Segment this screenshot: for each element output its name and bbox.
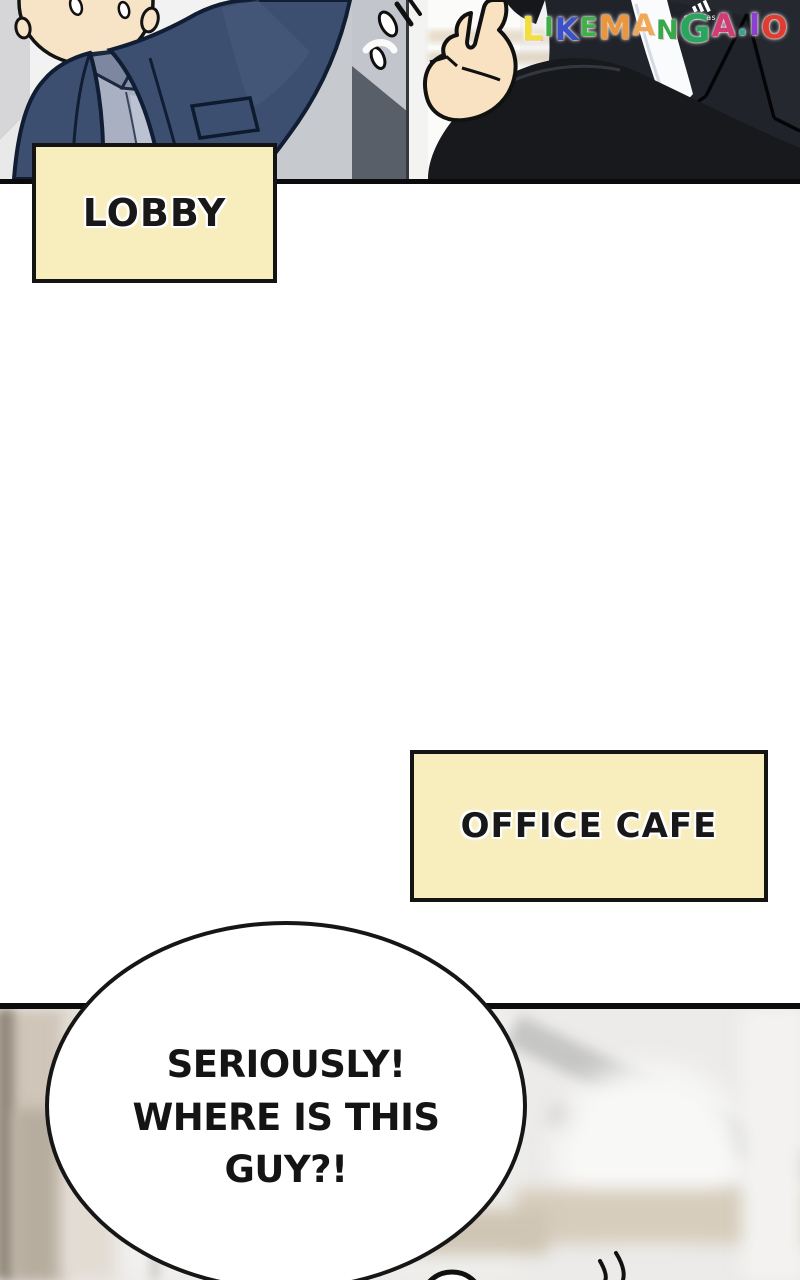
scene-label-lobby: LOBBY	[32, 143, 277, 283]
character-head-top-icon	[424, 1272, 480, 1280]
speech-bubble: SERIOUSLY! WHERE IS THIS GUY?!	[45, 921, 527, 1280]
scene-label-lobby-text: LOBBY	[83, 191, 227, 235]
speech-bubble-text: SERIOUSLY! WHERE IS THIS GUY?!	[132, 1015, 439, 1197]
sadidas-label: sadidas	[684, 13, 716, 22]
bubble-line: GUY?!	[132, 1144, 439, 1197]
bubble-line: SERIOUSLY!	[132, 1039, 439, 1092]
hair-stroke-icon	[616, 1253, 624, 1280]
webtoon-page: sadidas LIKEMANGA.IO LOBBY OFFICE CAFE	[0, 0, 800, 1280]
scene-label-office-cafe-text: OFFICE CAFE	[461, 806, 718, 846]
hair-stroke-icon	[600, 1261, 606, 1280]
scene-label-office-cafe: OFFICE CAFE	[410, 750, 768, 902]
bubble-line: WHERE IS THIS	[132, 1092, 439, 1145]
